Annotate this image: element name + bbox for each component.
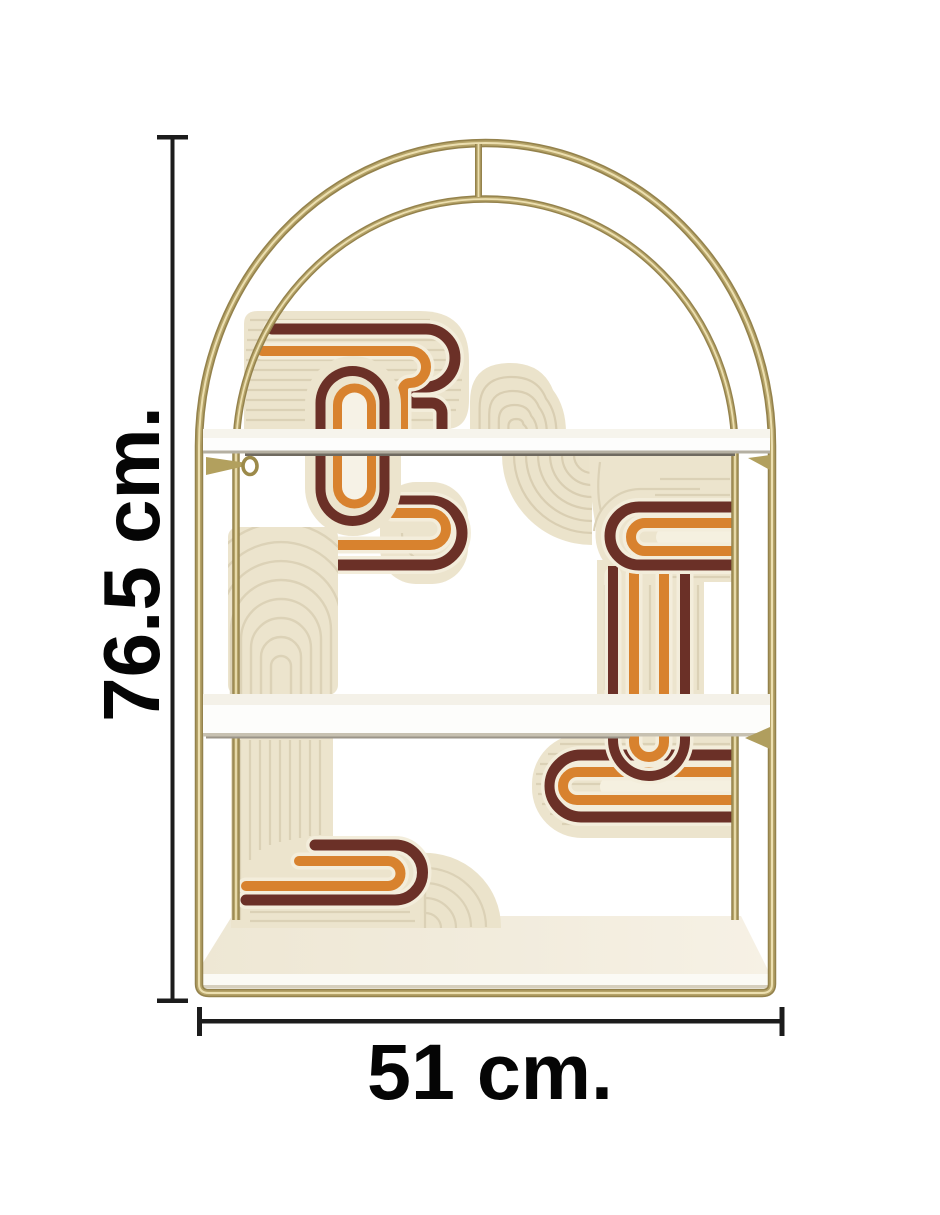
- svg-text:76.5 cm.: 76.5 cm.: [87, 406, 176, 722]
- svg-text:51 cm.: 51 cm.: [367, 1027, 613, 1116]
